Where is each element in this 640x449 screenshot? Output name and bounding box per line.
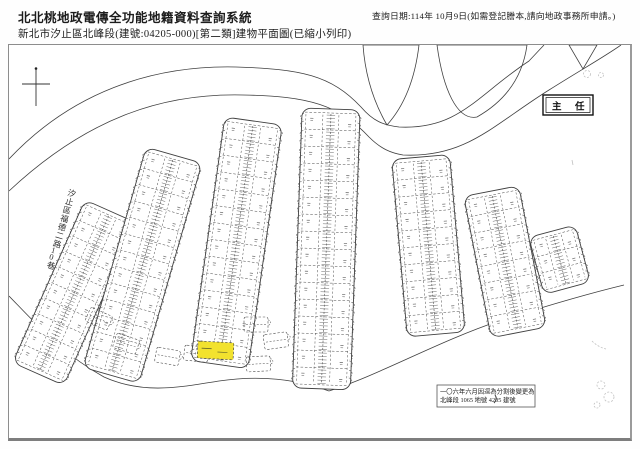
house-outline [246, 356, 273, 372]
building-strip [463, 186, 548, 338]
north-compass-icon [22, 67, 50, 106]
svg-text:一〇六年六月因逕為分割後變更為: 一〇六年六月因逕為分割後變更為 [440, 387, 534, 396]
cadastral-plan-svg: 汐止區福德二路10巷主任一〇六年六月因逕為分割後變更為北峰段 1065 地號 4… [9, 45, 630, 438]
svg-text:主: 主 [552, 101, 562, 113]
building-strip [291, 108, 361, 390]
house-outline [154, 347, 183, 366]
query-date: 查詢日期:114年 10月9日(如需登記謄本,請向地政事務所申請。) [372, 9, 616, 22]
document-subtitle: 新北市汐止區北峰段(建號:04205-000)[第二類]建物平面圖(已縮小列印) [18, 26, 351, 41]
building-strip [391, 154, 467, 337]
director-stamp: 主任 [543, 95, 593, 115]
building-strips-layer [12, 108, 592, 390]
building-strip [189, 117, 283, 369]
floor-plan-map: 汐止區福德二路10巷主任一〇六年六月因逕為分割後變更為北峰段 1065 地號 4… [8, 44, 632, 441]
system-title: 北北桃地政電傳全功能地籍資料查詢系統 [18, 7, 252, 26]
svg-text:北峰段 1065 地號 4205 建號: 北峰段 1065 地號 4205 建號 [440, 395, 516, 404]
highlighted-building [197, 341, 234, 360]
print-page: 北北桃地政電傳全功能地籍資料查詢系統 查詢日期:114年 10月9日(如需登記謄… [0, 0, 640, 449]
annotation-note-box: 一〇六年六月因逕為分割後變更為北峰段 1065 地號 4205 建號 [437, 385, 535, 407]
house-outline [263, 331, 291, 350]
svg-text:任: 任 [574, 101, 585, 113]
